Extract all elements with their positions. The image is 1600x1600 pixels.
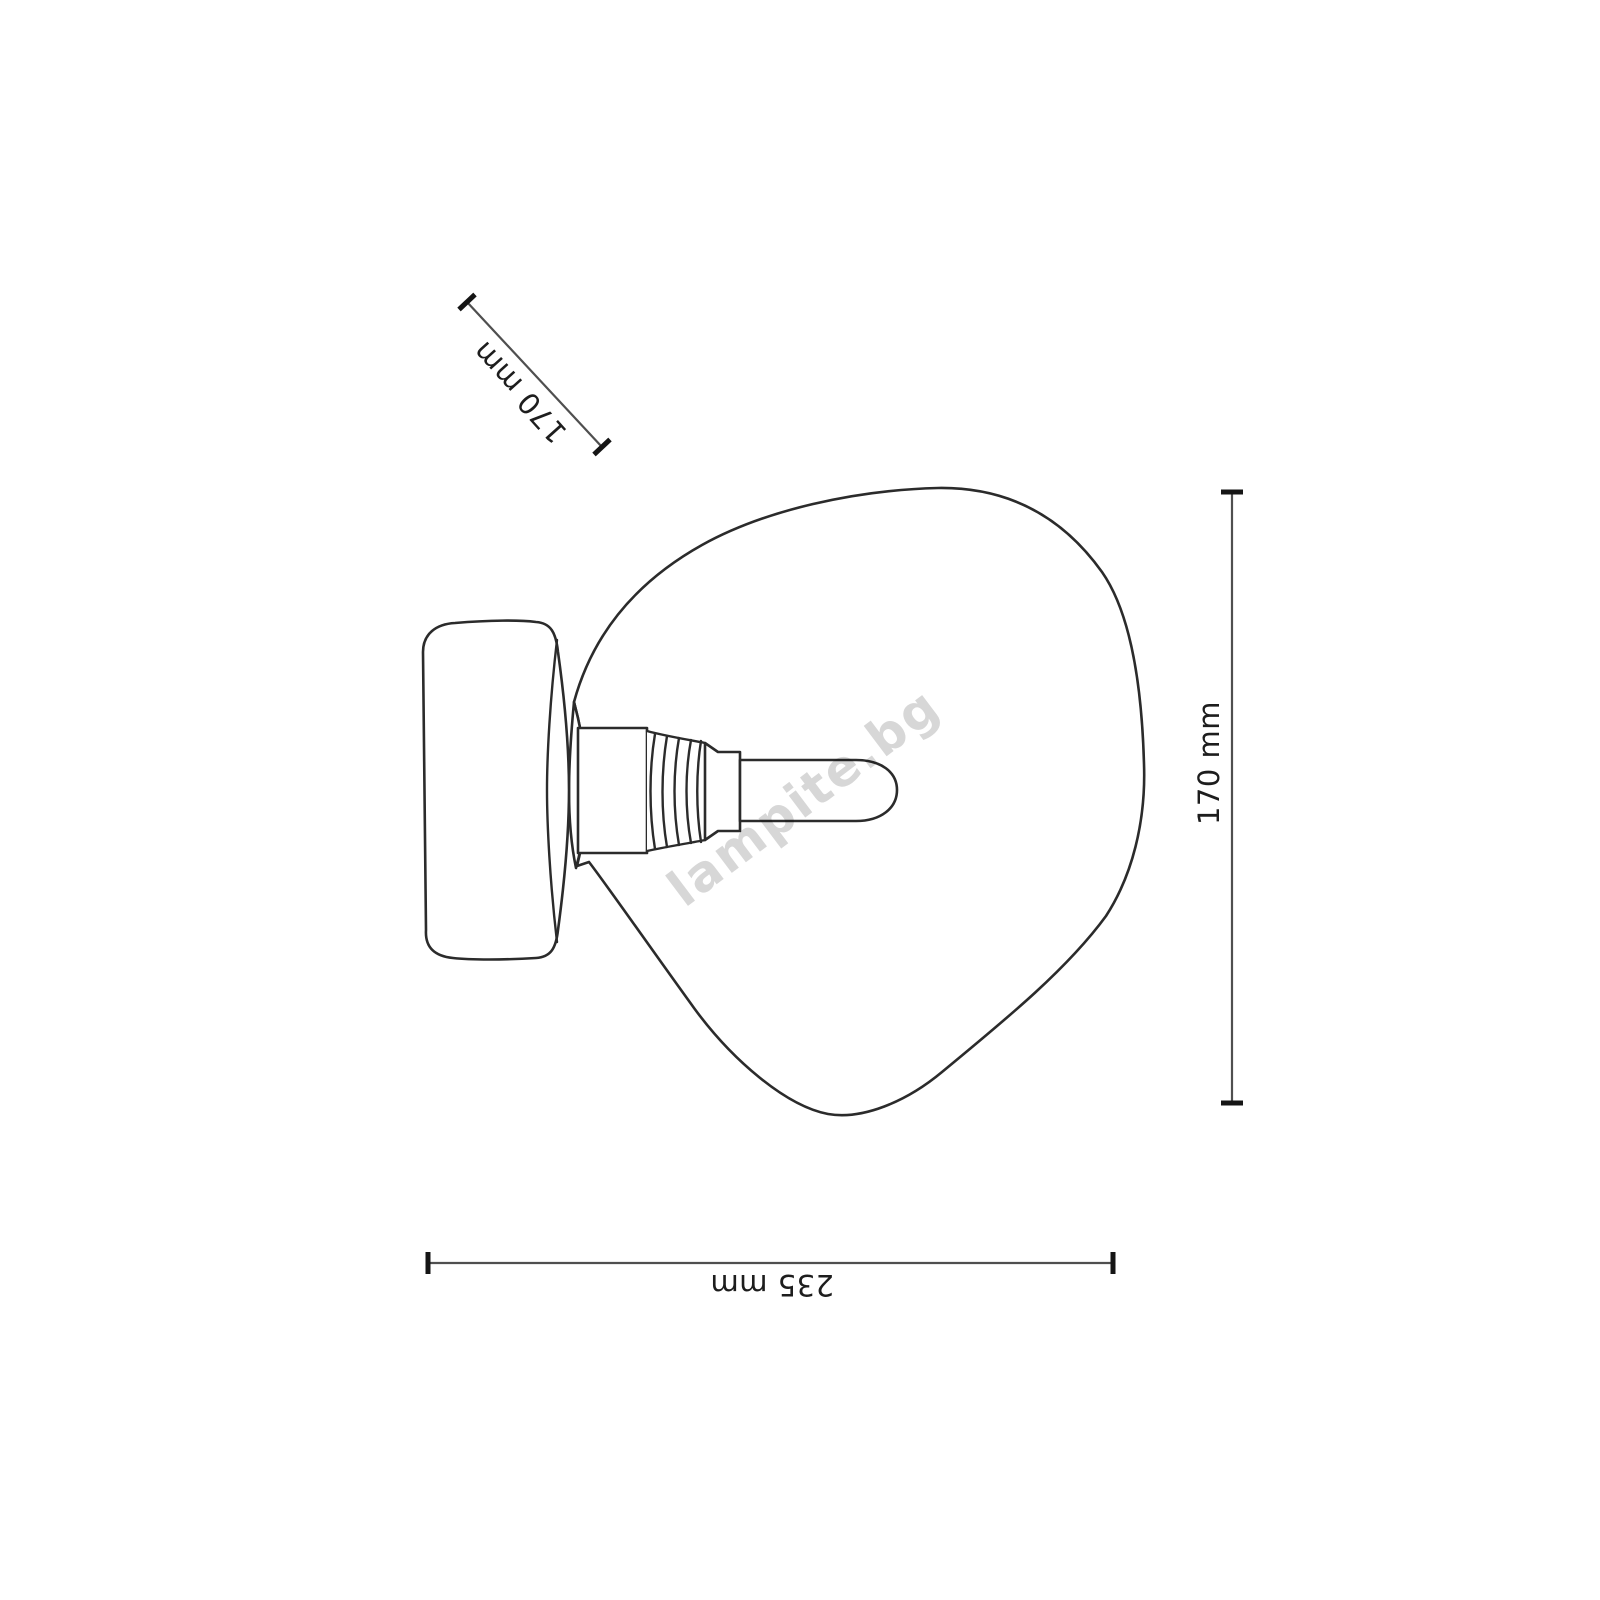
dimension-horizontal-group: 235 mm bbox=[428, 1252, 1113, 1302]
dimension-vertical-label: 170 mm bbox=[1192, 701, 1226, 825]
dimension-vertical-group: 170 mm bbox=[1192, 492, 1243, 1103]
dimension-drawing-page: 170 mm 170 mm 235 mm lampite.bg bbox=[0, 0, 1600, 1600]
technical-drawing-canvas: 170 mm 170 mm 235 mm lampite.bg bbox=[0, 0, 1600, 1600]
dimension-horizontal-label: 235 mm bbox=[710, 1268, 834, 1302]
dimension-diagonal-group: 170 mm bbox=[459, 295, 610, 455]
dimension-diagonal-label: 170 mm bbox=[465, 335, 573, 450]
socket-body bbox=[578, 728, 647, 853]
